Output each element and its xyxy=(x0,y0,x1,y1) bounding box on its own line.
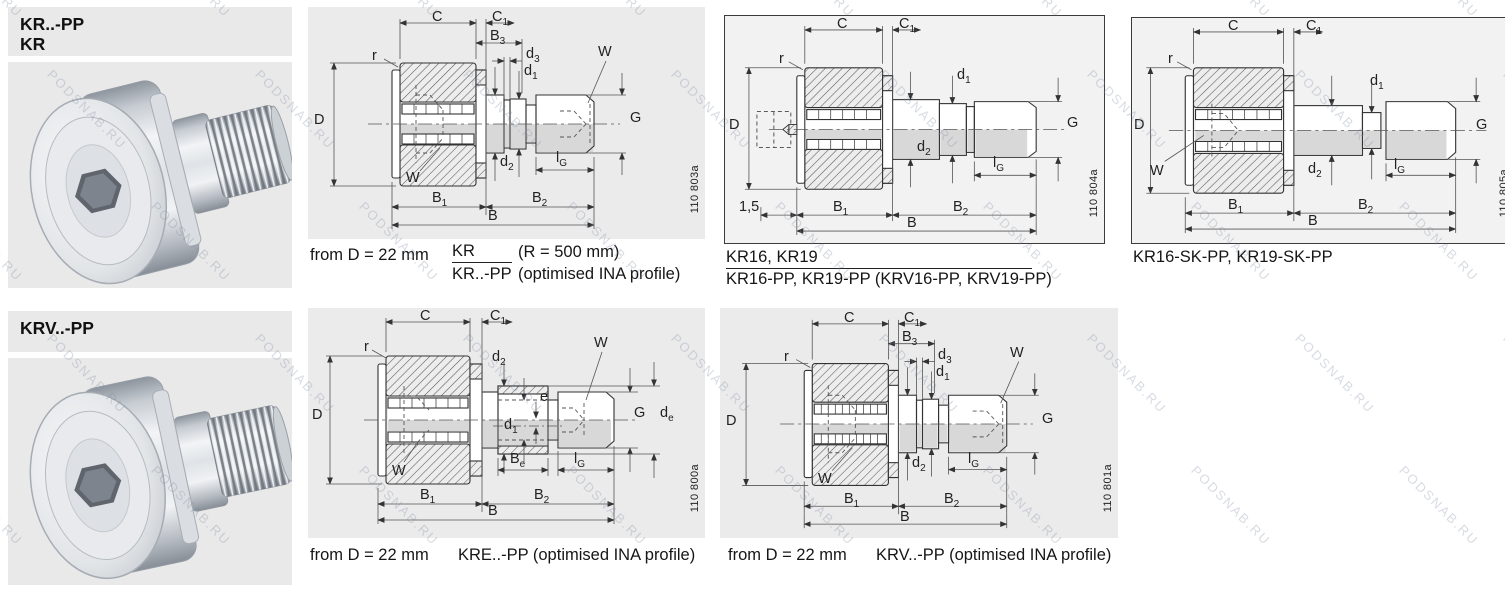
watermark-text: PODSNAB.RU xyxy=(1188,463,1274,549)
caption-kr-fraction-bottom: KR..-PP xyxy=(452,263,512,284)
dim-label-c1: C1 xyxy=(492,10,508,25)
dim-label-d: D xyxy=(729,118,739,133)
dim-label-b2: B2 xyxy=(532,191,547,206)
dim-label-b2: B2 xyxy=(953,200,968,215)
dim-label-e: e xyxy=(540,390,548,405)
dim-label-w-roller: W xyxy=(392,464,406,479)
caption-kr-note2: (optimised INA profile) xyxy=(518,265,680,284)
dim-label-c1: C1 xyxy=(899,17,915,32)
product-photo-krv xyxy=(8,358,292,585)
dim-label-c: C xyxy=(432,10,442,25)
figure-number: 110 803a xyxy=(689,165,701,213)
dim-label-w-roller: W xyxy=(818,472,832,487)
dim-label-d1: d1 xyxy=(957,68,971,83)
dim-label-b1: B1 xyxy=(420,488,435,503)
figure-number: 110 801a xyxy=(1102,464,1114,512)
type-designation-kr-pp: KR..-PP xyxy=(8,14,292,34)
dim-label-b: B xyxy=(1308,214,1318,229)
dim-label-d2: d2 xyxy=(917,140,931,155)
dim-label-de: de xyxy=(660,406,674,421)
watermark-text: PODSNAB.RU xyxy=(1500,331,1505,417)
dim-label-c: C xyxy=(837,17,847,32)
dim-label-r: r xyxy=(364,340,369,355)
dim-label-w-stud: W xyxy=(1010,346,1024,361)
catalog-page: KR..-PP KR KRV..-PP xyxy=(0,0,1505,594)
dim-label-d3: d3 xyxy=(938,348,952,363)
dim-label-lg: lG xyxy=(556,151,567,166)
dim-label-c1: C1 xyxy=(1306,19,1322,34)
caption-kr16-line1: KR16, KR19 xyxy=(726,248,1032,269)
dim-label-g: G xyxy=(634,406,645,421)
dim-label-w: W xyxy=(1150,164,1164,179)
caption-kr-fraction: KR KR..-PP xyxy=(452,242,512,284)
dim-label-d3: d3 xyxy=(526,47,540,62)
dim-label-d2: d2 xyxy=(492,350,506,365)
dim-label-c1: C1 xyxy=(904,311,920,326)
caption-krv-main: KRV..-PP (optimised INA profile) xyxy=(876,546,1111,565)
drawing-panel-kr16-sk: C C1 d1 r D W d2 G lG B1 B2 B 110 805a xyxy=(1131,17,1505,244)
dim-label-w-roller: W xyxy=(406,171,420,186)
dim-label-lg: lG xyxy=(993,156,1004,171)
dim-label-g: G xyxy=(1042,412,1053,427)
drawing-panel-krv: C C1 B3 d3 d1 W r D G d2 lG W B1 B2 B 11… xyxy=(720,308,1118,538)
dim-label-d2: d2 xyxy=(500,155,514,170)
dim-label-g: G xyxy=(630,111,641,126)
caption-kr16-line2: KR16-PP, KR19-PP (KRV16-PP, KRV19-PP) xyxy=(726,270,1052,289)
caption-kr-prefix: from D = 22 mm xyxy=(310,246,429,265)
dim-label-r: r xyxy=(1168,52,1173,67)
type-designation-krv-pp: KRV..-PP xyxy=(8,318,292,338)
dim-label-w-stud: W xyxy=(598,45,612,60)
technical-drawing-kr16-sk xyxy=(1132,18,1505,243)
cam-follower-photo-krv xyxy=(8,358,292,585)
dim-label-d: D xyxy=(726,414,736,429)
dim-label-d1: d1 xyxy=(504,418,518,433)
dim-label-lg: lG xyxy=(968,452,979,467)
dim-label-b2: B2 xyxy=(534,488,549,503)
dim-label-b3: B3 xyxy=(490,29,505,44)
dim-label-c: C xyxy=(420,309,430,324)
dim-label-b1: B1 xyxy=(844,492,859,507)
dim-label-d: D xyxy=(314,113,324,128)
dim-label-d1: d1 xyxy=(1370,74,1384,89)
caption-kre-prefix: from D = 22 mm xyxy=(310,546,429,565)
dim-label-b3: B3 xyxy=(902,330,917,345)
watermark-text: PODSNAB.RU xyxy=(1396,463,1482,549)
dim-label-c1: C1 xyxy=(490,309,506,324)
caption-kr16-sk: KR16-SK-PP, KR19-SK-PP xyxy=(1133,248,1333,267)
figure-number: 110 804a xyxy=(1088,169,1100,217)
technical-drawing-kr xyxy=(308,7,705,239)
product-photo-kr xyxy=(8,62,292,288)
dim-label-d2: d2 xyxy=(1308,162,1322,177)
figure-number: 110 800a xyxy=(689,464,701,512)
dim-label-c: C xyxy=(1228,19,1238,34)
header-box-krv: KRV..-PP xyxy=(8,311,292,352)
dim-label-be: Be xyxy=(510,452,525,467)
caption-krv-prefix: from D = 22 mm xyxy=(728,546,847,565)
watermark-text: PODSNAB.RU xyxy=(1292,331,1378,417)
dim-label-b: B xyxy=(488,504,498,519)
caption-kr-note1: (R = 500 mm) xyxy=(518,243,619,262)
drawing-panel-kre: C C1 d2 W e r D d1 G de W Be lG B1 B2 B … xyxy=(308,308,705,538)
dim-label-g: G xyxy=(1476,118,1487,133)
dim-label-d1: d1 xyxy=(936,365,950,380)
dim-label-c: C xyxy=(844,311,854,326)
dim-label-b1: B1 xyxy=(432,191,447,206)
dim-label-d2: d2 xyxy=(912,456,926,471)
dim-label-lg: lG xyxy=(574,452,585,467)
dim-label-r: r xyxy=(779,52,784,67)
type-designation-kr: KR xyxy=(8,34,292,54)
caption-kr-fraction-top: KR xyxy=(452,242,512,263)
dim-label-g: G xyxy=(1067,116,1078,131)
dim-label-b1: B1 xyxy=(833,200,848,215)
figure-number: 110 805a xyxy=(1498,169,1505,217)
cam-follower-photo-kr xyxy=(8,62,292,288)
drawing-panel-kr: C C1 B3 d3 d1 W r D G d2 lG W B1 B2 B 11… xyxy=(308,7,705,239)
dim-label-b: B xyxy=(900,510,910,525)
drawing-panel-kr16: C C1 d1 r D d2 G lG 1,5 B1 B2 B 110 804a xyxy=(724,15,1105,244)
dim-label-lg: lG xyxy=(1394,158,1405,173)
technical-drawing-krv xyxy=(720,308,1118,538)
dim-label-r: r xyxy=(784,350,789,365)
dim-label-b: B xyxy=(907,216,917,231)
dim-label-r: r xyxy=(372,49,377,64)
dim-label-b: B xyxy=(488,209,498,224)
dim-label-chamfer: 1,5 xyxy=(739,200,759,215)
dim-label-b2: B2 xyxy=(944,492,959,507)
dim-label-w-stud: W xyxy=(594,336,608,351)
dim-label-d: D xyxy=(312,408,322,423)
dim-label-d1: d1 xyxy=(524,64,538,79)
dim-label-b2: B2 xyxy=(1358,198,1373,213)
header-box-kr: KR..-PP KR xyxy=(8,7,292,56)
dim-label-d: D xyxy=(1134,118,1144,133)
caption-kre-main: KRE..-PP (optimised INA profile) xyxy=(458,546,695,565)
dim-label-b1: B1 xyxy=(1228,198,1243,213)
